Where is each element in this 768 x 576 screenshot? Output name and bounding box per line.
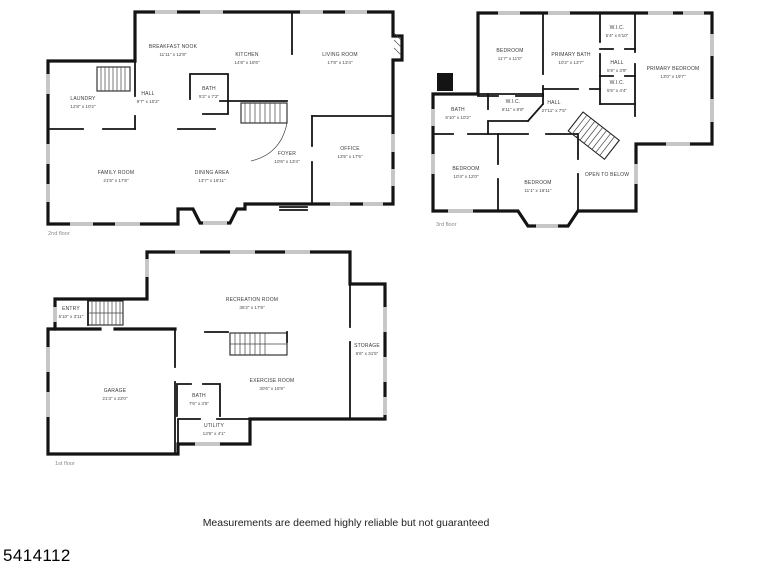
room-label: W.I.C. <box>610 25 625 31</box>
disclaimer-text: Measurements are deemed highly reliable … <box>0 517 692 529</box>
room-label: BATH <box>202 86 216 92</box>
room-dims: 11'11" x 12'8" <box>159 52 186 57</box>
room-dims: 13'6" x 4'1" <box>203 431 226 436</box>
room-dims: 21'3" x 23'0" <box>102 396 128 401</box>
floor-label-2nd: 2nd floor <box>48 231 70 237</box>
room-label: DINING AREA <box>195 170 230 176</box>
exterior-walls <box>433 13 712 226</box>
stairs-icon <box>88 301 123 325</box>
window-markers <box>48 252 385 444</box>
room-label: KITCHEN <box>235 52 259 58</box>
room-label: GARAGE <box>104 388 127 394</box>
room-dims: 17'8" x 13'4" <box>327 60 353 65</box>
room-label: LIVING ROOM <box>322 52 358 58</box>
room-dims: 13'5" x 17'5" <box>337 154 363 159</box>
room-dims: 5'2" x 7'2" <box>199 94 219 99</box>
room-dims: 5'9" x 3'9" <box>607 68 627 73</box>
room-label: PRIMARY BATH <box>551 52 591 58</box>
room-label: OPEN TO BELOW <box>585 172 629 178</box>
floor-plan-1st: ENTRY 5'10" x 3'11" RECREATION ROOM 35'2… <box>45 247 395 472</box>
room-label: OFFICE <box>340 146 360 152</box>
room-label: UTILITY <box>204 423 224 429</box>
stairs-icon <box>97 67 130 91</box>
room-label: BATH <box>192 393 206 399</box>
window-markers <box>433 13 712 226</box>
floor-plan-2nd: BREAKFAST NOOK 11'11" x 12'8" KITCHEN 14… <box>45 4 410 244</box>
room-label: W.I.C. <box>610 80 625 86</box>
room-dims: 12'8" x 10'2" <box>70 104 96 109</box>
room-label: BEDROOM <box>496 48 523 54</box>
room-label: HALL <box>547 100 560 106</box>
floor-plan-3rd: BEDROOM 11'7" x 11'0" PRIMARY BATH 10'2"… <box>428 4 743 244</box>
room-label: LAUNDRY <box>70 96 96 102</box>
stairs-icon <box>230 333 287 355</box>
room-label: RECREATION ROOM <box>226 297 278 303</box>
room-dims: 9'7" x 10'2" <box>137 99 160 104</box>
listing-id: 5414112 <box>3 546 71 566</box>
floor-label-1st: 1st floor <box>55 461 75 467</box>
room-label: EXERCISE ROOM <box>250 378 295 384</box>
room-dims: 27'11" x 7'5" <box>542 108 567 113</box>
room-label: HALL <box>141 91 154 97</box>
room-dims: 5'4" x 6'10" <box>606 33 629 38</box>
room-dims: 21'5" x 17'8" <box>103 178 129 183</box>
room-label: FAMILY ROOM <box>98 170 134 176</box>
room-label: BATH <box>451 107 465 113</box>
room-dims: 14'8" x 18'6" <box>234 60 260 65</box>
room-dims: 6'10" x 10'2" <box>445 115 471 120</box>
interior-walls <box>55 284 350 454</box>
floor-label-3rd: 3rd floor <box>436 222 457 228</box>
room-dims: 11'1" x 16'11" <box>524 188 551 193</box>
room-dims: 5'10" x 3'11" <box>59 314 84 319</box>
room-label: HALL <box>610 60 623 66</box>
room-dims: 10'4" x 12'0" <box>453 174 479 179</box>
room-dims: 13'0" x 19'7" <box>660 74 686 79</box>
room-dims: 11'7" x 11'0" <box>498 56 523 61</box>
room-label: W.I.C. <box>506 99 521 105</box>
room-labels: BEDROOM 11'7" x 11'0" PRIMARY BATH 10'2"… <box>445 25 699 193</box>
chimney <box>437 73 453 91</box>
stairs-icon <box>568 112 619 159</box>
room-dims: 13'7" x 16'11" <box>198 178 226 183</box>
room-label: PRIMARY BEDROOM <box>647 66 700 72</box>
room-label: ENTRY <box>62 306 80 312</box>
room-dims: 6'11" x 8'9" <box>502 107 525 112</box>
room-dims: 6'6" x 31'5" <box>356 351 379 356</box>
room-dims: 5'5" x 4'4" <box>607 88 627 93</box>
room-dims: 30'6" x 15'9" <box>259 386 285 391</box>
room-dims: 10'2" x 13'7" <box>558 60 584 65</box>
room-label: FOYER <box>278 151 296 157</box>
window-markers <box>48 12 393 224</box>
room-label: BEDROOM <box>452 166 479 172</box>
room-dims: 10'6" x 13'4" <box>274 159 300 164</box>
room-label: BREAKFAST NOOK <box>149 44 198 50</box>
exterior-walls <box>48 12 402 224</box>
room-label: BEDROOM <box>524 180 551 186</box>
room-dims: 35'2" x 17'9" <box>239 305 265 310</box>
room-dims: 7'6" x 3'5" <box>189 401 209 406</box>
room-label: STORAGE <box>354 343 380 349</box>
